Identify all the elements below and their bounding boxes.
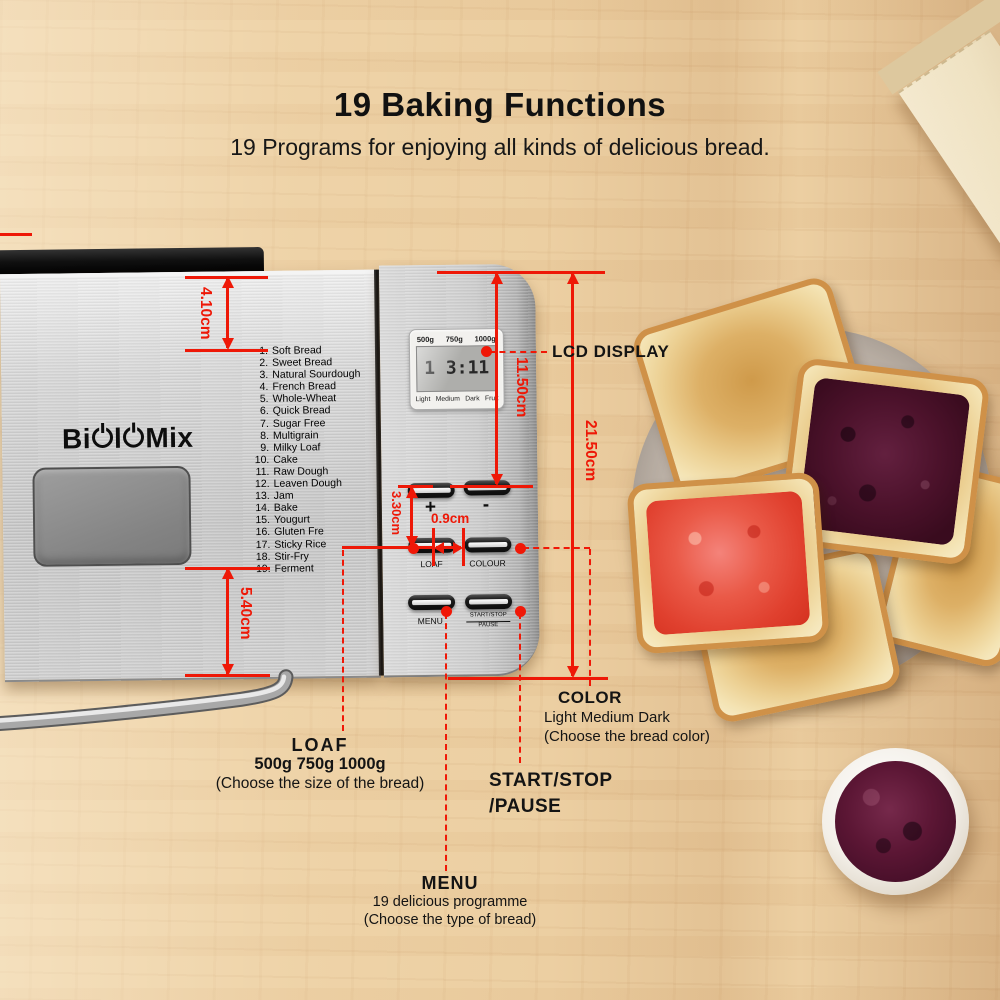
brand-logo: BilMix <box>62 422 194 456</box>
program-number: 4. <box>246 381 268 393</box>
machine-handle <box>0 668 324 742</box>
lcd-shades: LightMediumDarkFruit <box>410 391 503 407</box>
strawberry-jam <box>646 491 811 636</box>
dot-menu <box>441 606 452 617</box>
program-name: Milky Loaf <box>273 441 320 454</box>
lcd-shade-option: Light <box>416 396 431 403</box>
program-name: Yougurt <box>274 514 310 527</box>
program-number: 15. <box>248 514 270 526</box>
lcd-weights: 500g750g1000g <box>410 329 503 346</box>
callout-menu-line1: 19 delicious programme <box>345 893 555 912</box>
power-o-icon <box>92 427 113 448</box>
program-number: 11. <box>247 466 269 478</box>
pause-text: PAUSE <box>478 622 498 628</box>
page-title: 19 Baking Functions <box>0 86 1000 124</box>
bread-machine: BilMix 1.Soft Bread2.Sweet Bread3.Natura… <box>0 268 542 681</box>
measure-1150-arrow <box>495 274 498 484</box>
lcd-weight-option: 500g <box>417 335 434 344</box>
callout-color-line1: Light Medium Dark <box>544 708 710 728</box>
callout-menu-title: MENU <box>345 874 555 893</box>
page-subtitle: 19 Programs for enjoying all kinds of de… <box>0 134 1000 161</box>
callout-loaf-line1: 500g 750g 1000g <box>200 755 440 774</box>
program-number: 17. <box>248 538 270 550</box>
program-name: Jam <box>274 490 294 502</box>
colour-button <box>464 537 511 553</box>
callout-color-line2: (Choose the bread color) <box>544 727 710 747</box>
lcd-weight-option: 750g <box>446 335 463 344</box>
callout-loaf-title: LOAF <box>200 736 440 755</box>
program-number: 2. <box>246 357 268 369</box>
jam-in-bowl <box>835 761 956 882</box>
callout-color-title: COLOR <box>558 688 710 708</box>
dash-colour-h <box>523 547 590 549</box>
dash-loaf <box>342 550 344 731</box>
callout-loaf-line2: (Choose the size of the bread) <box>200 774 440 793</box>
callout-start-title: START/STOP <box>489 768 613 794</box>
program-number: 5. <box>246 393 268 405</box>
measure-09-label: 0.9cm <box>431 511 469 526</box>
program-number: 9. <box>247 442 269 454</box>
dot-colour <box>515 543 526 554</box>
measure-09-arrow <box>436 546 461 549</box>
minus-sign: - <box>483 494 490 516</box>
start-stop-button <box>465 594 512 610</box>
program-number: 3. <box>246 369 268 381</box>
dash-colour-v <box>589 549 591 686</box>
program-name: Whole-Wheat <box>272 392 336 405</box>
tick-lid-left <box>0 233 32 236</box>
program-name: Raw Dough <box>273 465 328 478</box>
callout-menu-line2: (Choose the type of bread) <box>345 911 555 930</box>
dot-lcd <box>481 346 492 357</box>
measure-1150-label: 11.50cm <box>512 357 530 417</box>
program-name: Soft Bread <box>272 344 322 357</box>
tick-loaf-row <box>342 546 434 549</box>
dash-lcd <box>489 351 547 353</box>
program-number: 14. <box>248 502 270 514</box>
program-name: Sweet Bread <box>272 356 332 369</box>
viewing-window <box>32 466 191 567</box>
program-name: Gluten Fre <box>274 526 324 539</box>
program-name: Stir-Fry <box>274 550 309 563</box>
tick-panel-bottom <box>448 677 608 680</box>
program-name: Multigrain <box>273 429 319 442</box>
dot-loaf <box>408 543 419 554</box>
callout-loaf: LOAF 500g 750g 1000g (Choose the size of… <box>200 736 440 793</box>
lcd-weight-option: 1000g <box>475 334 496 343</box>
measure-2150-arrow <box>571 274 574 676</box>
program-name: Ferment <box>275 562 314 575</box>
dark-jam <box>797 377 970 546</box>
dash-menu <box>445 613 447 871</box>
program-name: Natural Sourdough <box>272 368 360 381</box>
callout-lcd-display: LCD DISPLAY <box>552 342 669 362</box>
lcd-shade-option: Dark <box>465 395 479 402</box>
measure-410-label: 4.10cm <box>196 287 214 340</box>
measure-540-label: 5.40cm <box>236 587 254 640</box>
toast-red-jam <box>626 472 829 655</box>
product-infographic: 19 Baking Functions 19 Programs for enjo… <box>0 0 1000 1000</box>
menu-button-label: MENU <box>400 616 460 627</box>
program-number: 6. <box>247 405 269 417</box>
program-name: Cake <box>273 453 298 465</box>
program-number: 10. <box>247 454 269 466</box>
program-number: 16. <box>248 526 270 538</box>
dash-start <box>519 613 521 763</box>
program-number: 12. <box>248 478 270 490</box>
lcd-display: 500g750g1000g 1 3:11 LightMediumDarkFrui… <box>409 328 505 410</box>
program-name: Leaven Dough <box>274 477 342 490</box>
colour-button-label: COLOUR <box>458 558 518 569</box>
callout-start-stop: START/STOP /PAUSE <box>489 768 613 820</box>
callout-menu: MENU 19 delicious programme (Choose the … <box>345 874 555 930</box>
measure-2150-label: 21.50cm <box>581 420 599 481</box>
program-name: Sugar Free <box>273 417 326 430</box>
measure-540-arrow <box>226 569 229 674</box>
program-number: 18. <box>248 551 270 563</box>
start-stop-button-label: START/STOP PAUSE <box>458 612 518 630</box>
callout-start-line1: /PAUSE <box>489 794 613 820</box>
dot-start <box>515 606 526 617</box>
program-name: Quick Bread <box>273 405 331 418</box>
program-name: Sticky Rice <box>274 538 326 551</box>
program-name: French Bread <box>272 380 336 393</box>
program-number: 8. <box>247 430 269 442</box>
jam-bowl-photo <box>822 748 969 895</box>
measure-330-label: 3.30cm <box>389 491 404 535</box>
program-list: 1.Soft Bread2.Sweet Bread3.Natural Sourd… <box>246 344 363 575</box>
power-o-icon <box>123 426 144 447</box>
program-number: 13. <box>248 490 270 502</box>
callout-color: COLOR Light Medium Dark (Choose the brea… <box>544 688 710 747</box>
program-item: 3.Natural Sourdough <box>246 368 360 381</box>
start-stop-text: START/STOP <box>467 612 510 622</box>
program-name: Bake <box>274 502 298 514</box>
tick-panel-top <box>437 271 605 274</box>
measure-330-arrow <box>410 488 413 546</box>
lcd-shade-option: Medium <box>436 396 460 403</box>
measure-410-arrow <box>226 278 229 348</box>
program-number: 7. <box>247 417 269 429</box>
